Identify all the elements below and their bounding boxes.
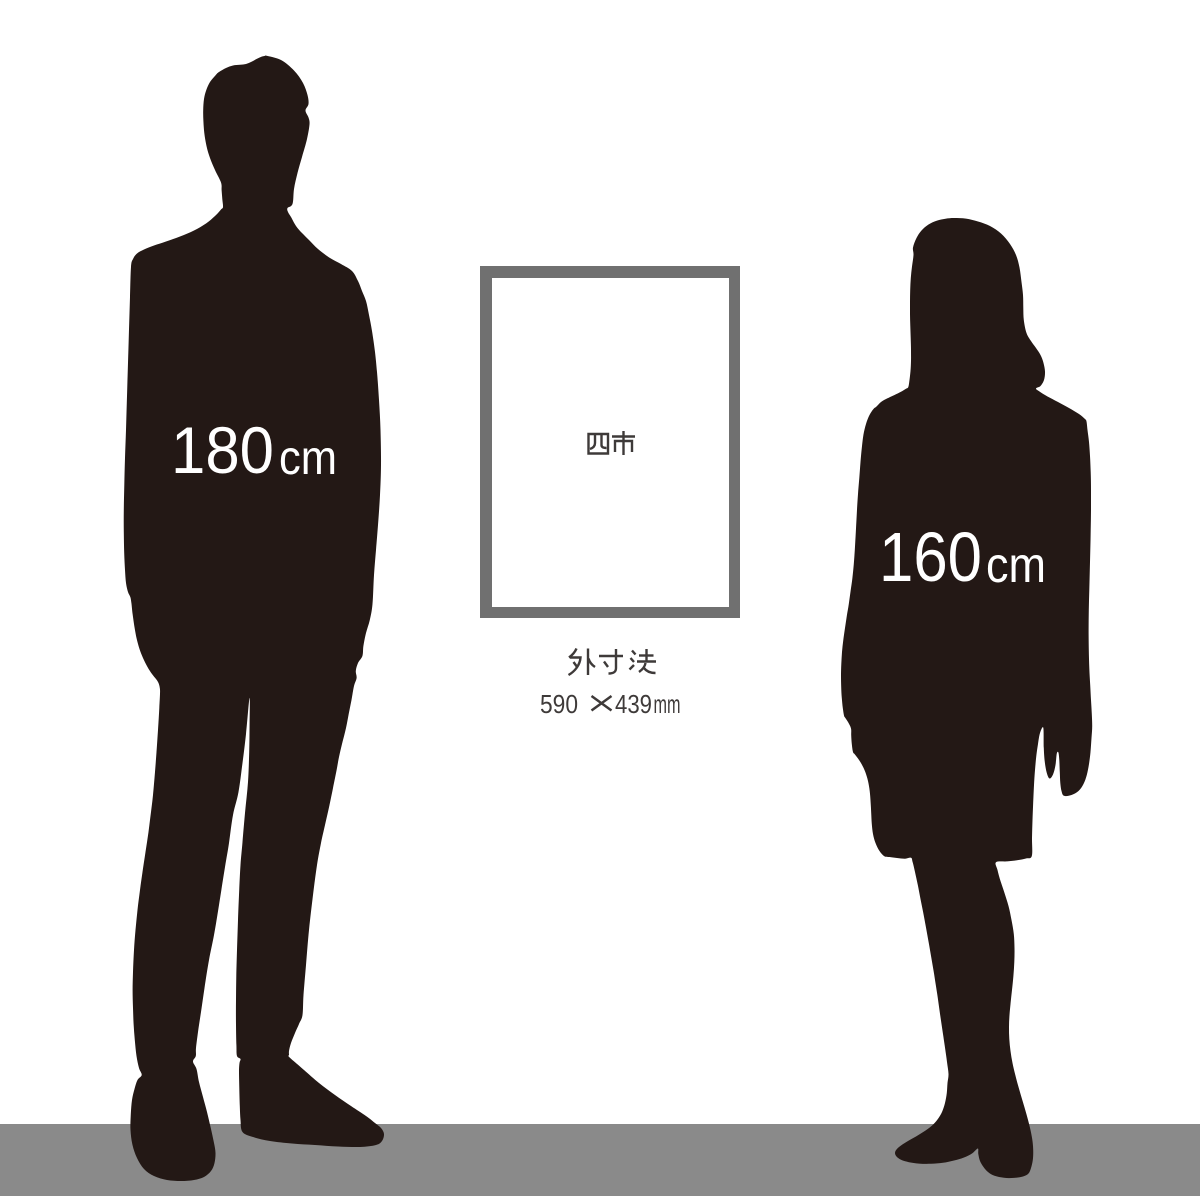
svg-text:mm: mm: [654, 689, 681, 719]
svg-text:590: 590: [540, 689, 578, 719]
svg-text:cm: cm: [986, 537, 1046, 593]
svg-text:439: 439: [615, 689, 652, 719]
svg-text:160: 160: [879, 518, 982, 596]
svg-text:cm: cm: [279, 432, 337, 485]
svg-text:180: 180: [171, 413, 274, 487]
